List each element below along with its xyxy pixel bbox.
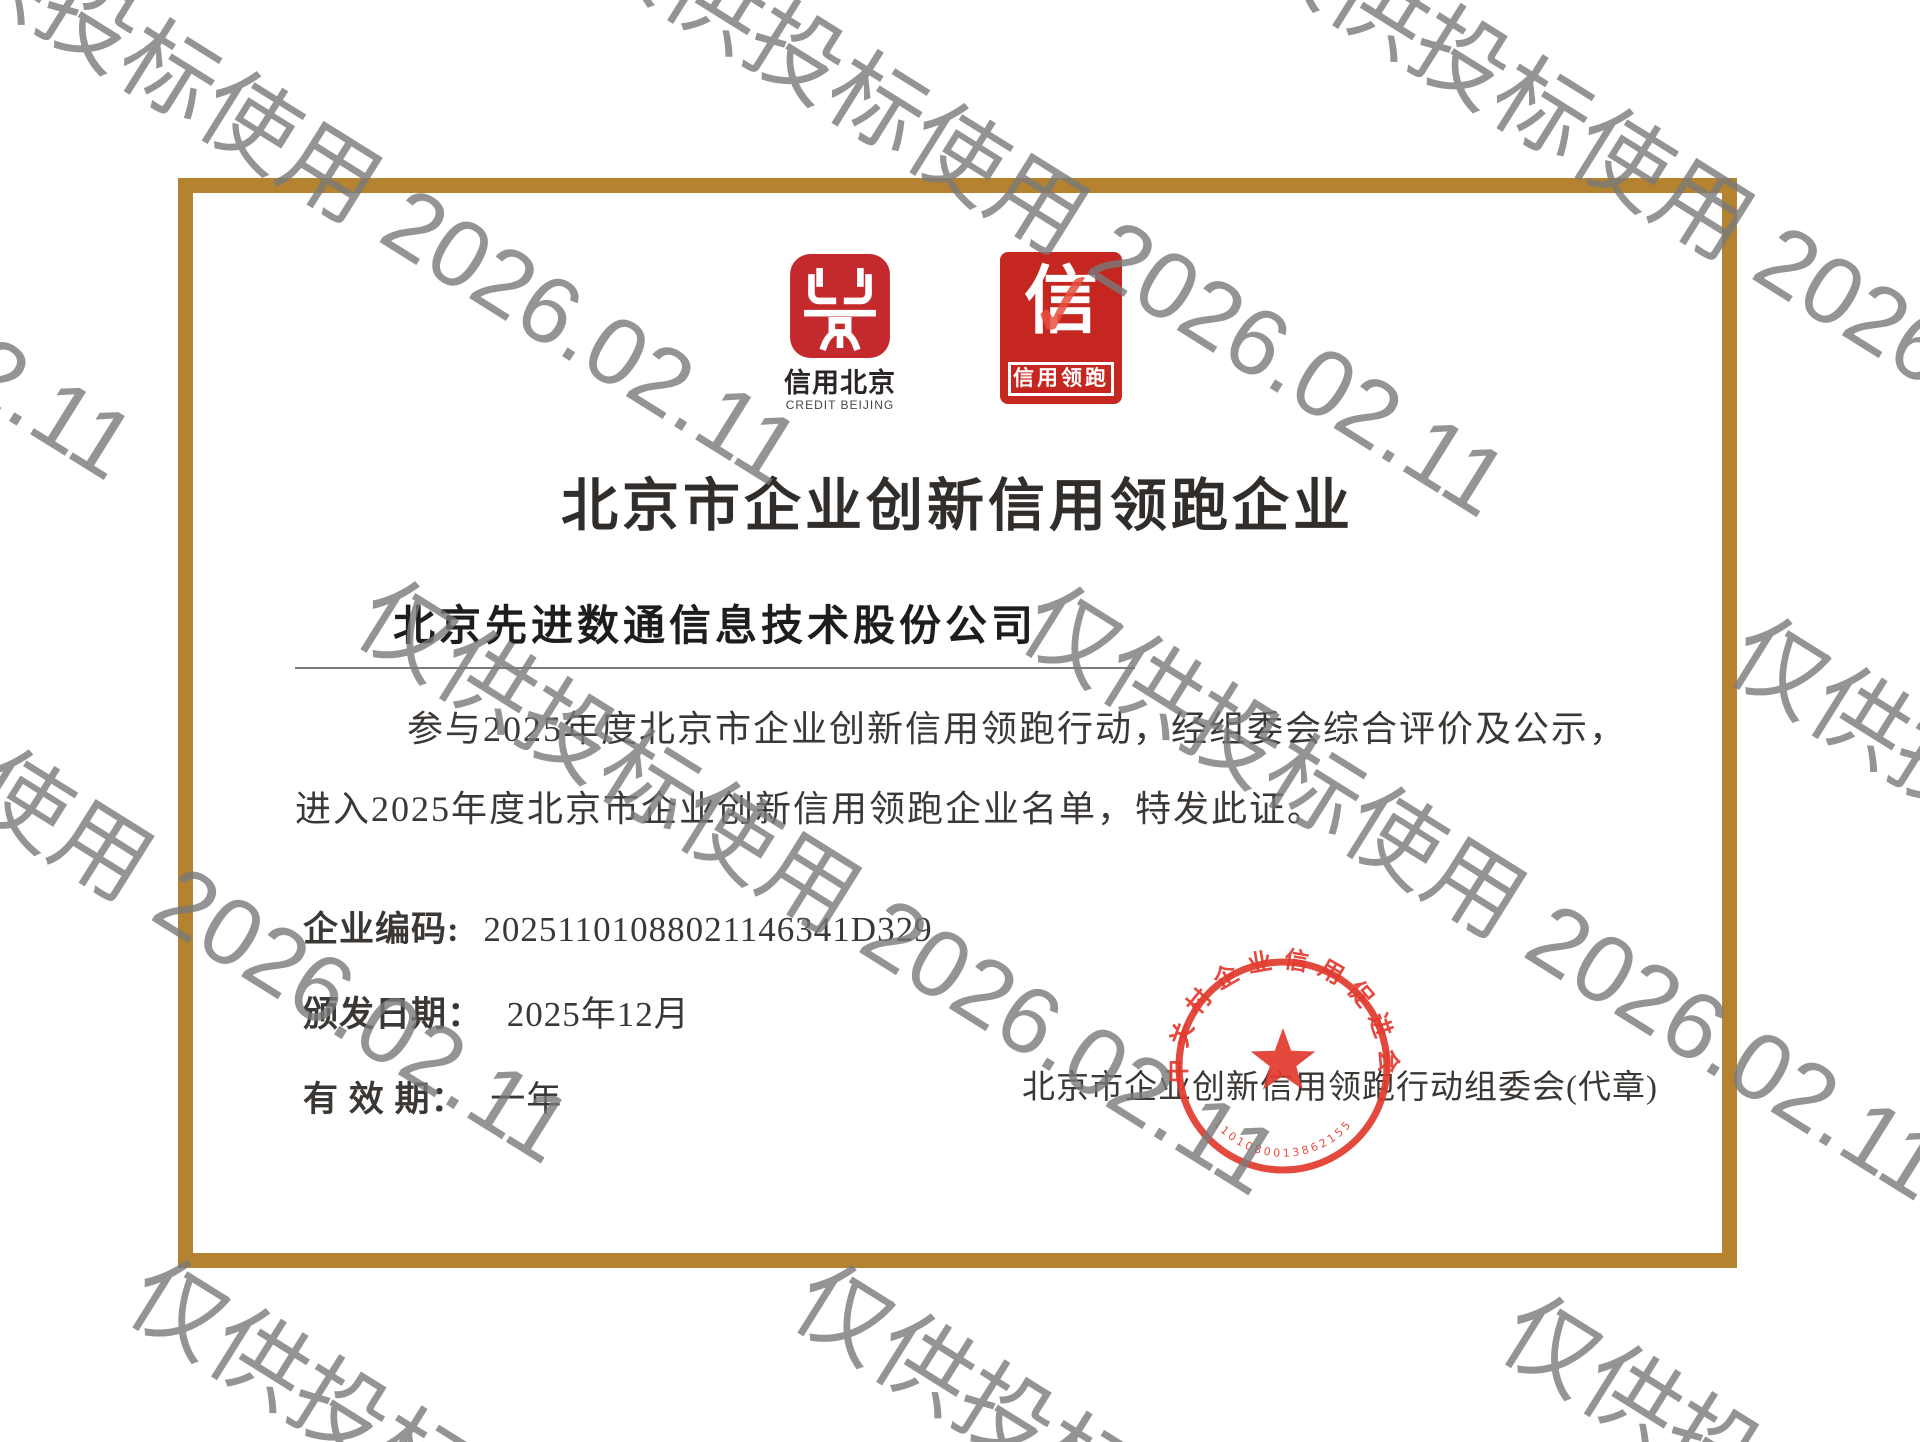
issue-date-label: 颁发日期： <box>303 995 483 1034</box>
checkmark-icon: ✓ <box>1021 254 1108 358</box>
company-name-block: 北京先进数通信息技术股份公司 <box>295 592 1135 669</box>
official-seal: 中关村企业信用促进会 1101080013862155 <box>1163 946 1403 1186</box>
credit-beijing-en-label: CREDIT BEIJING <box>775 398 905 412</box>
issue-date-value: 2025年12月 <box>507 995 690 1034</box>
enterprise-code-row: 企业编码: 20251101088021146341D329 <box>303 901 933 952</box>
validity-value: 一年 <box>490 1080 562 1119</box>
validity-row: 有 效 期： 一年 <box>303 1071 562 1122</box>
issue-date-row: 颁发日期： 2025年12月 <box>303 986 690 1037</box>
certificate-page: 信用北京 CREDIT BEIJING 信 ✓ 信用领跑 北京市企业创新信用领跑… <box>0 0 1920 1442</box>
certificate-title: 北京市企业创新信用领跑企业 <box>178 460 1737 542</box>
enterprise-code-label: 企业编码: <box>303 910 460 949</box>
credit-leading-band-label: 信用领跑 <box>1008 362 1114 396</box>
credit-beijing-cn-label: 信用北京 <box>775 361 905 400</box>
company-name: 北京先进数通信息技术股份公司 <box>295 592 1135 653</box>
credit-beijing-logo: 信用北京 CREDIT BEIJING <box>775 253 905 412</box>
validity-label: 有 效 期： <box>303 1080 467 1119</box>
body-text-line1: 参与2025年度北京市企业创新信用领跑行动，经组委会综合评价及公示， <box>295 700 1627 752</box>
enterprise-code-value: 20251101088021146341D329 <box>483 910 932 949</box>
credit-leading-stamp-icon: 信 ✓ 信用领跑 <box>1000 252 1122 404</box>
seal-star-icon <box>1251 1028 1316 1090</box>
credit-beijing-mark-icon <box>775 253 905 359</box>
company-underline <box>295 667 1135 669</box>
body-text-line2: 进入2025年度北京市企业创新信用领跑企业名单，特发此证。 <box>295 780 1325 832</box>
